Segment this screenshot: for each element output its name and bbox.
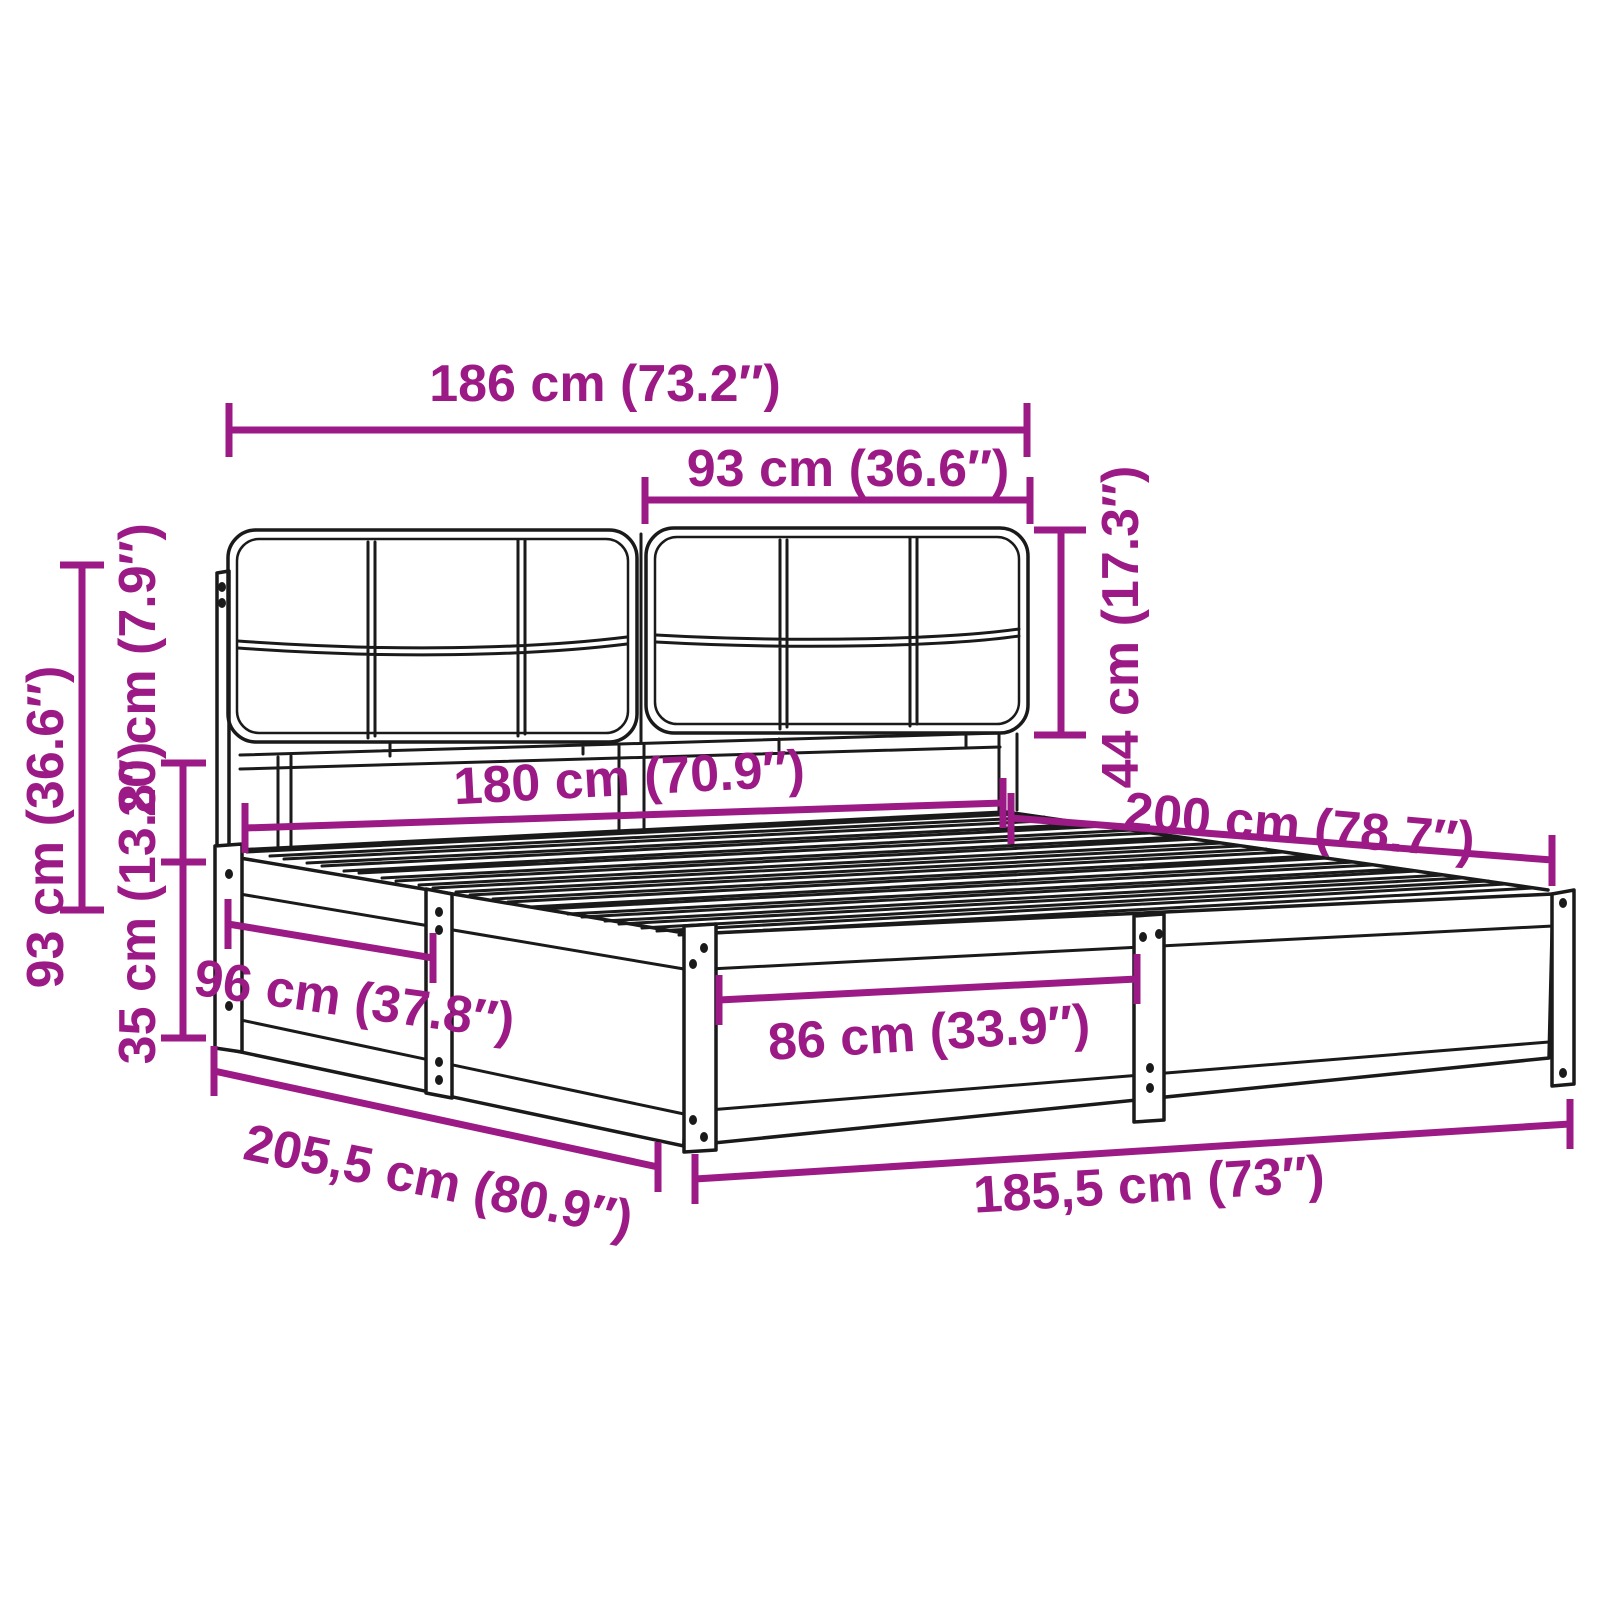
diagram-canvas: 186 cm (73.2″) 93 cm (36.6″) 44 cm (17.3… (0, 0, 1600, 1600)
dim-label: 35 cm (13.8″) (109, 742, 167, 1065)
front-right-corner-post (1552, 890, 1574, 1086)
product-dimension-diagram: 186 cm (73.2″) 93 cm (36.6″) 44 cm (17.3… (0, 0, 1600, 1600)
dim-label: 44 cm (17.3″) (1092, 466, 1150, 789)
dim-label: 93 cm (36.6″) (687, 440, 1010, 498)
dim-label: 93 cm (36.6″) (17, 666, 75, 989)
background (0, 0, 1600, 1600)
dim-label: 186 cm (73.2″) (429, 355, 781, 413)
front-left-corner-post (684, 924, 716, 1152)
